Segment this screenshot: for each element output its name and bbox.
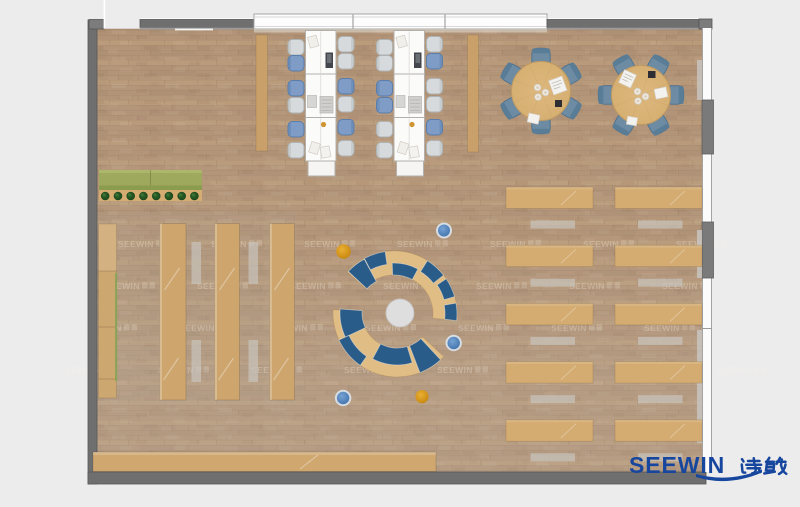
svg-text:SEEWIN: SEEWIN <box>716 365 752 375</box>
svg-text:SEEWIN: SEEWIN <box>437 365 473 375</box>
svg-text:SEEWIN: SEEWIN <box>304 239 340 249</box>
svg-text:SEEWIN: SEEWIN <box>383 281 419 291</box>
svg-text:SEEWIN: SEEWIN <box>458 323 494 333</box>
svg-text:SEEWIN: SEEWIN <box>397 239 433 249</box>
svg-text:SEEWIN: SEEWIN <box>476 281 512 291</box>
svg-text:SEEWIN: SEEWIN <box>290 281 326 291</box>
svg-text:SEEWIN: SEEWIN <box>118 239 154 249</box>
svg-text:SEEWIN: SEEWIN <box>629 452 725 478</box>
